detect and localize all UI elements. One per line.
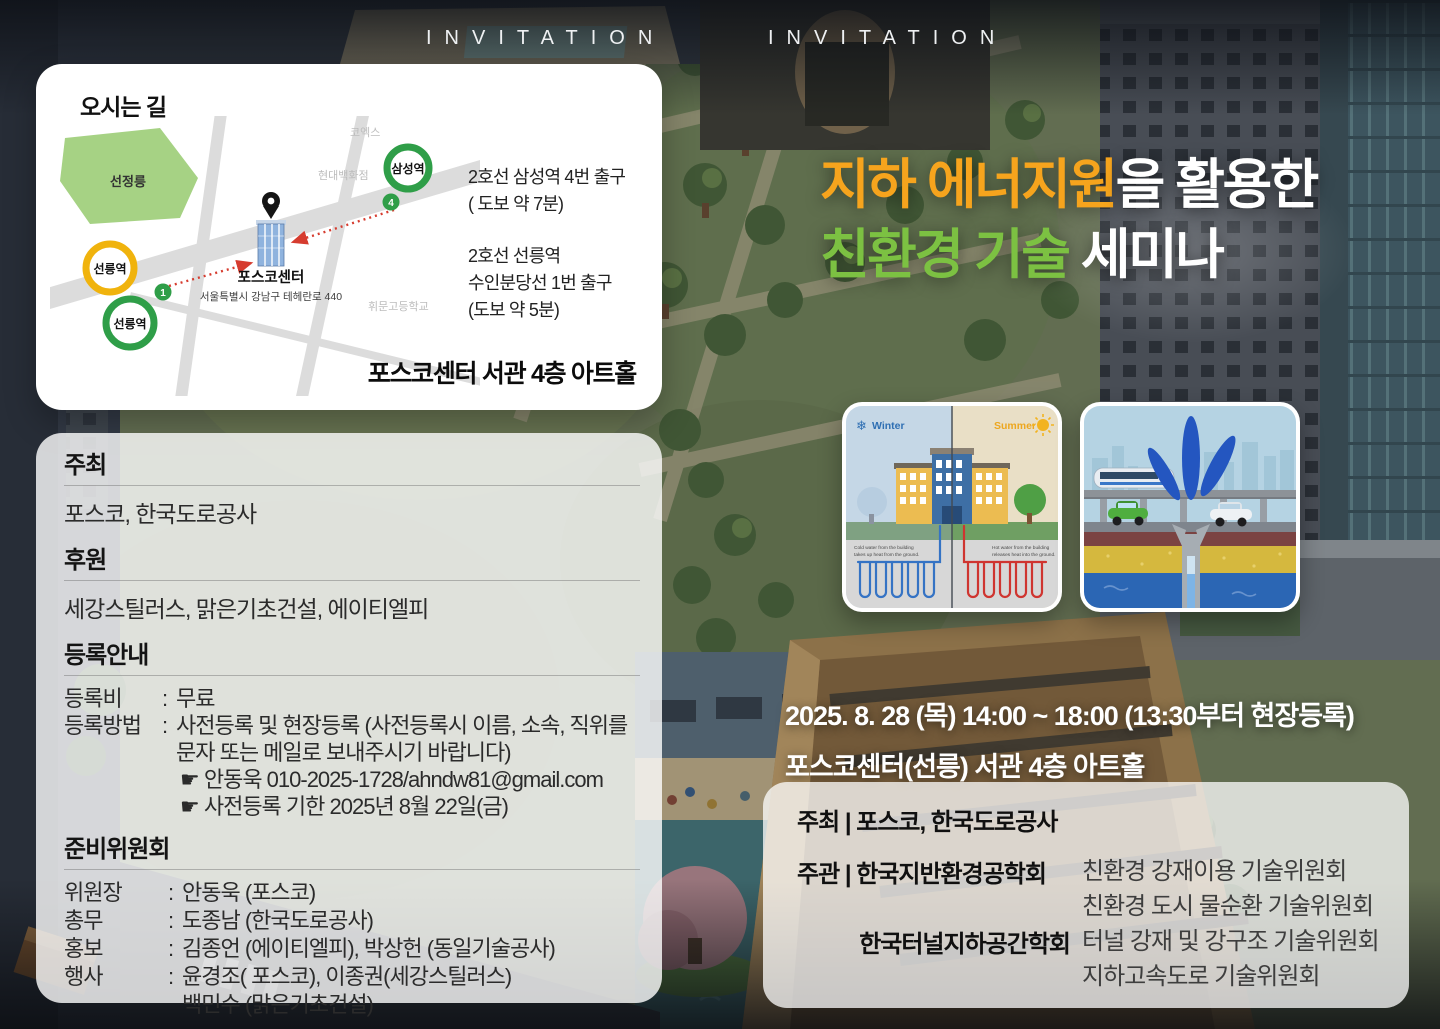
committee-names: 윤경조( 포스코), 이종권(세강스틸러스) 백민수 (맑은기초건설)	[182, 963, 640, 1019]
organizer-label: 주관	[797, 861, 839, 888]
event-schedule: 2025. 8. 28 (목) 14:00 ~ 18:00 (13:30부터 현…	[785, 694, 1354, 784]
venue-hall-label: 포스코센터 서관 4층 아트홀	[368, 354, 636, 390]
svg-text:선릉역: 선릉역	[113, 316, 146, 331]
section-divider	[64, 485, 640, 486]
fee-label: 등록비	[64, 685, 162, 712]
committee-item: 친환경 강재이용 기술위원회	[1082, 854, 1391, 889]
map-poi-whimoon: 휘문고등학교	[368, 300, 429, 313]
winter-label: Winter	[872, 420, 905, 432]
title-rest-1: 을 활용한	[1116, 155, 1317, 215]
geothermal-seasons-diagram-card: ❄ Winter Summer	[842, 402, 1062, 612]
map-pin-icon	[262, 192, 280, 219]
committee-item: 친환경 도시 물순환 기술위원회	[1082, 889, 1391, 924]
registration-contact: ☛ 안동욱 010-2025-1728/ahndw81@gmail.com	[176, 766, 640, 793]
title-accent-underground-energy: 지하 에너지원	[820, 155, 1116, 215]
committee-role: 총무	[64, 907, 168, 935]
direction-line: ( 도보 약 7분)	[468, 191, 625, 218]
host-row: 주최 | 포스코, 한국도로공사	[797, 802, 1391, 837]
sponsor-section-body: 세강스틸러스, 맑은기초건설, 에이티엘피	[64, 590, 640, 624]
fee-value: 무료	[176, 685, 640, 712]
directions-card: 오시는 길 선정릉 코엑스 현대백화점 휘문고등학교	[36, 64, 662, 410]
organizer-row-1: 주관 | 한국지반환경공학회	[797, 854, 1082, 924]
map-station-seolleung-yellow: 선릉역	[86, 244, 134, 292]
map-venue-name: 포스코센터	[238, 269, 305, 286]
host-value: 포스코, 한국도로공사	[856, 809, 1057, 836]
committee-role: 홍보	[64, 935, 168, 963]
committee-names: 김종언 (에이티엘피), 박상헌 (동일기술공사)	[182, 935, 640, 963]
event-venue: 포스코센터(선릉) 서관 4층 아트홀	[785, 745, 1354, 784]
committee-names-line: 백민수 (맑은기초건설)	[182, 991, 640, 1019]
pipe-divider: |	[845, 861, 851, 888]
section-divider	[64, 580, 640, 581]
svg-text:1: 1	[160, 288, 166, 299]
method-value: 사전등록 및 현장등록 (사전등록시 이름, 소속, 직위를 문자 또는 메일로…	[176, 712, 640, 820]
map-park-label: 선정릉	[110, 174, 146, 189]
registration-deadline: ☛ 사전등록 기한 2025년 8월 22일(금)	[176, 793, 640, 820]
poster: INVITATION INVITATION 오시는 길 선정릉 코엑스 현대백화…	[0, 0, 1440, 1029]
host-label: 주최	[797, 809, 839, 836]
host-section-body: 포스코, 한국도로공사	[64, 495, 640, 529]
colon: :	[168, 907, 182, 935]
committee-role: 위원장	[64, 879, 168, 907]
title-line-2: 친환경 기술 세미나	[820, 220, 1317, 290]
snowflake-icon: ❄	[856, 418, 867, 433]
method-line: 사전등록 및 현장등록 (사전등록시 이름, 소속, 직위를	[176, 712, 640, 739]
svg-text:4: 4	[388, 198, 394, 209]
map-poi-hyundai: 현대백화점	[318, 169, 369, 182]
committee-names: 도종남 (한국도로공사)	[182, 907, 640, 935]
event-datetime: 2025. 8. 28 (목) 14:00 ~ 18:00 (13:30부터 현…	[785, 694, 1354, 733]
direction-line: 2호선 삼성역 4번 출구	[468, 164, 625, 191]
direction-line: 수인분당선 1번 출구	[468, 270, 625, 297]
svg-text:삼성역: 삼성역	[391, 161, 424, 176]
registration-details: 등록비 : 무료 등록방법 : 사전등록 및 현장등록 (사전등록시 이름, 소…	[64, 685, 640, 820]
method-label: 등록방법	[64, 712, 162, 820]
map-venue-building	[256, 220, 286, 266]
summer-label: Summer	[994, 420, 1036, 432]
groundwater-city-diagram-card	[1080, 402, 1300, 612]
invitation-text-left: INVITATION	[426, 27, 665, 50]
direction-gap	[468, 218, 625, 243]
colon: :	[162, 712, 176, 820]
hosting-organizations-card: 주최 | 포스코, 한국도로공사 주관 | 한국지반환경공학회 친환경 강재이용…	[763, 782, 1409, 1008]
seminar-title: 지하 에너지원을 활용한 친환경 기술 세미나	[820, 150, 1317, 290]
pipe-divider: |	[845, 809, 851, 836]
committee-section-heading: 준비위원회	[64, 837, 640, 863]
map-station-samseong: 삼성역	[387, 147, 429, 189]
organization-1-committees: 친환경 강재이용 기술위원회 친환경 도시 물순환 기술위원회	[1082, 854, 1391, 924]
title-line-1: 지하 에너지원을 활용한	[820, 150, 1317, 220]
committee-role: 행사	[64, 963, 168, 1019]
colon: :	[168, 935, 182, 963]
registration-section-heading: 등록안내	[64, 643, 640, 669]
map-poi-coex: 코엑스	[350, 126, 380, 139]
invitation-text-right: INVITATION	[768, 27, 1007, 50]
map-exit-badge-1: 1	[155, 284, 172, 301]
map-station-seolleung-green: 선릉역	[106, 299, 154, 347]
sponsor-section-heading: 후원	[64, 548, 640, 574]
committee-item: 지하고속도로 기술위원회	[1082, 959, 1391, 994]
organizer-grid: 주관 | 한국지반환경공학회 친환경 강재이용 기술위원회 친환경 도시 물순환…	[797, 854, 1391, 994]
host-section-heading: 주최	[64, 453, 640, 479]
organization-1-name: 한국지반환경공학회	[856, 861, 1046, 888]
committee-names: 안동욱 (포스코)	[182, 879, 640, 907]
direction-line: (도보 약 5분)	[468, 297, 625, 324]
colon: :	[168, 963, 182, 1019]
groundwater-diagram	[1084, 406, 1296, 608]
event-info-card: 주최 포스코, 한국도로공사 후원 세강스틸러스, 맑은기초건설, 에이티엘피 …	[36, 433, 662, 1003]
transit-directions: 2호선 삼성역 4번 출구 ( 도보 약 7분) 2호선 선릉역 수인분당선 1…	[468, 164, 625, 324]
title-rest-2: 세미나	[1068, 225, 1222, 285]
colon: :	[162, 685, 176, 712]
method-line: 문자 또는 메일로 보내주시기 바랍니다)	[176, 739, 640, 766]
map-venue-address: 서울특별시 강남구 테헤란로 440	[200, 290, 342, 303]
committee-item: 터널 강재 및 강구조 기술위원회	[1082, 924, 1391, 959]
organization-2-committees: 터널 강재 및 강구조 기술위원회 지하고속도로 기술위원회	[1082, 924, 1391, 994]
organization-2-name: 한국터널지하공간학회	[797, 924, 1082, 994]
committee-list: 위원장 : 안동욱 (포스코) 총무 : 도종남 (한국도로공사) 홍보 : 김…	[64, 879, 640, 1019]
section-divider	[64, 869, 640, 870]
svg-text:선릉역: 선릉역	[93, 261, 126, 276]
section-divider	[64, 675, 640, 676]
colon: :	[168, 879, 182, 907]
map-exit-badge-4: 4	[383, 194, 400, 211]
geothermal-diagram: ❄ Winter Summer	[846, 406, 1058, 608]
title-accent-eco-tech: 친환경 기술	[820, 225, 1068, 285]
committee-names-line: 윤경조( 포스코), 이종권(세강스틸러스)	[182, 963, 640, 991]
direction-line: 2호선 선릉역	[468, 243, 625, 270]
